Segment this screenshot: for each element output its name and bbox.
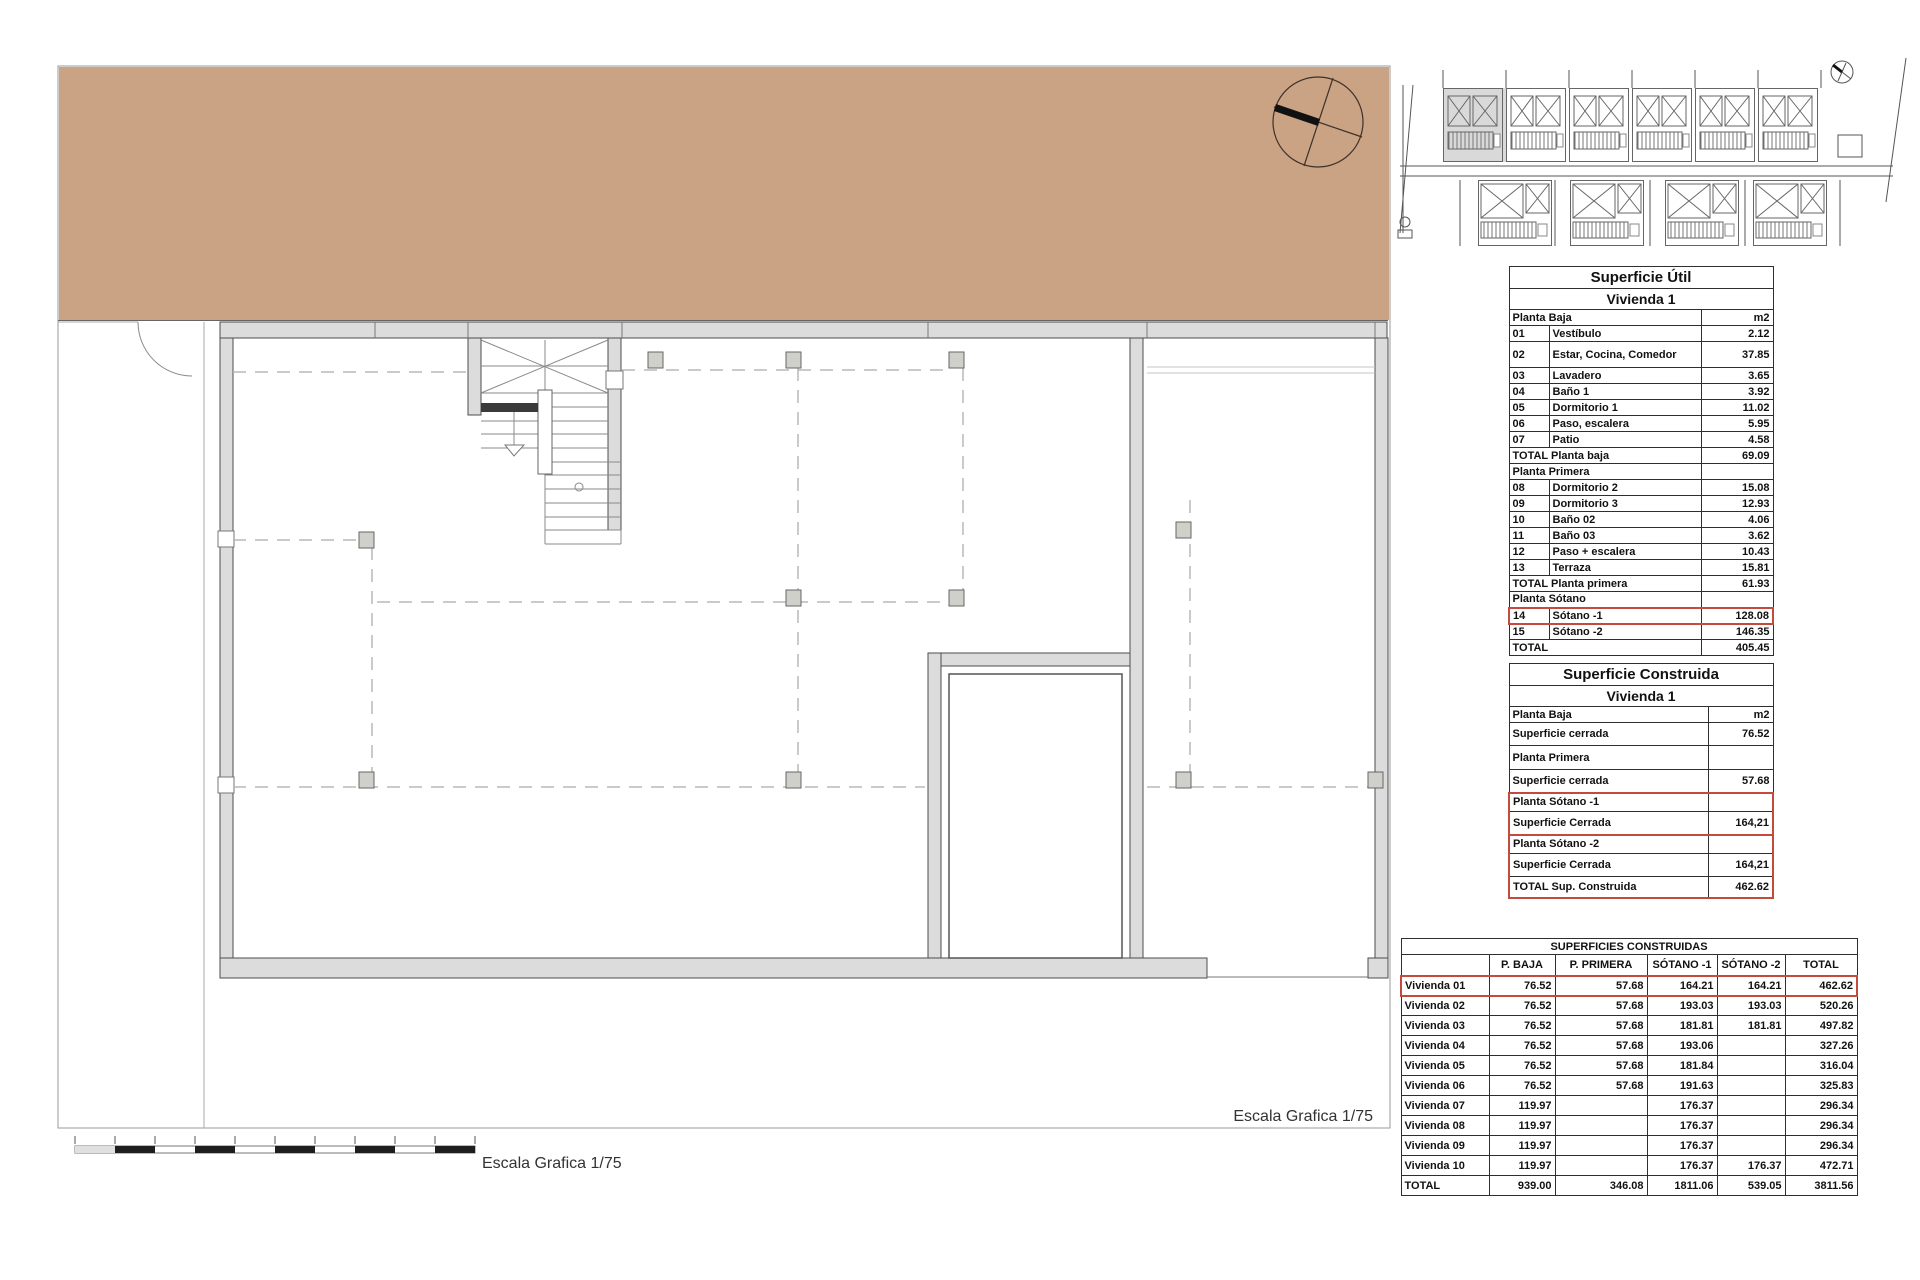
drawing-sheet: { "page": { "escala_label": "Escala Graf… — [0, 0, 1920, 1280]
column-header: SÓTANO -2 — [1717, 955, 1785, 976]
table-title: SUPERFICIES CONSTRUIDAS — [1401, 939, 1857, 955]
table-title: Superficie Útil — [1509, 267, 1773, 289]
table-row: 09Dormitorio 312.93 — [1509, 496, 1773, 512]
projection-dashed-lines — [233, 368, 1375, 787]
table-row: 07Patio4.58 — [1509, 432, 1773, 448]
table-row: Planta Sótano -1 — [1509, 793, 1773, 812]
wall-joints — [375, 322, 1375, 977]
table-row: 02Estar, Cocina, Comedor37.85 — [1509, 342, 1773, 368]
table-title: Superficie Construida — [1509, 664, 1773, 686]
table-subtitle: Vivienda 1 — [1509, 289, 1773, 310]
table-row: Planta Primera — [1509, 746, 1773, 770]
table-subtitle-row: Vivienda 1 — [1509, 686, 1773, 707]
table-row: Superficie cerrada57.68 — [1509, 770, 1773, 793]
column-header — [1401, 955, 1489, 976]
table-row: Vivienda 07119.97176.37296.34 — [1401, 1096, 1857, 1116]
table-row: 06Paso, escalera5.95 — [1509, 416, 1773, 432]
table-row: Superficie Cerrada164,21 — [1509, 854, 1773, 877]
table-row: Vivienda 09119.97176.37296.34 — [1401, 1136, 1857, 1156]
table-row: Vivienda 0476.5257.68193.06327.26 — [1401, 1036, 1857, 1056]
table-row: 15Sótano -2146.35 — [1509, 624, 1773, 640]
site-plan-thumbnail — [1398, 58, 1906, 246]
superficie-util-table: Superficie Útil Vivienda 1 Planta Bajam2… — [1508, 266, 1774, 656]
table-row: Vivienda 0176.5257.68164.21164.21462.62 — [1401, 976, 1857, 996]
table-row: 01Vestíbulo2.12 — [1509, 326, 1773, 342]
table-row: TOTAL939.00346.081811.06539.053811.56 — [1401, 1176, 1857, 1196]
table-row: Superficie Cerrada164,21 — [1509, 812, 1773, 835]
column-header: P. PRIMERA — [1555, 955, 1647, 976]
thumb-north-arrow-icon — [1831, 61, 1853, 83]
neighbor-beam-lines — [1147, 367, 1375, 373]
column-header: P. BAJA — [1489, 955, 1555, 976]
table-row: 14Sótano -1128.08 — [1509, 608, 1773, 624]
table-row: 12Paso + escalera10.43 — [1509, 544, 1773, 560]
table-row: 13Terraza15.81 — [1509, 560, 1773, 576]
table-subtitle: Vivienda 1 — [1509, 686, 1773, 707]
scale-caption-bar: Escala Grafica 1/75 — [482, 1155, 622, 1172]
table-title-row: SUPERFICIES CONSTRUIDAS — [1401, 939, 1857, 955]
staircase — [481, 340, 621, 544]
table-row: Planta Bajam2 — [1509, 310, 1773, 326]
walls — [220, 322, 1388, 978]
table-row: TOTAL Planta primera61.93 — [1509, 576, 1773, 592]
table-row: 03Lavadero3.65 — [1509, 368, 1773, 384]
table-row: Planta Sótano -2 — [1509, 835, 1773, 854]
column-header: SÓTANO -1 — [1647, 955, 1717, 976]
table-row: Planta Sótano — [1509, 592, 1773, 608]
table-subtitle-row: Vivienda 1 — [1509, 289, 1773, 310]
table-row: Vivienda 0376.5257.68181.81181.81497.82 — [1401, 1016, 1857, 1036]
table-row: Planta Primera — [1509, 464, 1773, 480]
table-row: Vivienda 0576.5257.68181.84316.04 — [1401, 1056, 1857, 1076]
table-row: 11Baño 033.62 — [1509, 528, 1773, 544]
table-title-row: Superficie Útil — [1509, 267, 1773, 289]
table-row: 04Baño 13.92 — [1509, 384, 1773, 400]
scale-bar — [75, 1136, 475, 1153]
table-row: 08Dormitorio 215.08 — [1509, 480, 1773, 496]
column-header: TOTAL — [1785, 955, 1857, 976]
table-row: 10Baño 024.06 — [1509, 512, 1773, 528]
superficies-construidas-table: SUPERFICIES CONSTRUIDAS P. BAJA P. PRIME… — [1400, 938, 1858, 1196]
table-row: Superficie cerrada76.52 — [1509, 723, 1773, 746]
superficie-construida-table: Superficie Construida Vivienda 1 Planta … — [1508, 663, 1774, 899]
structural-columns — [359, 352, 1383, 788]
table-row: Vivienda 0676.5257.68191.63325.83 — [1401, 1076, 1857, 1096]
patio-room-lining — [949, 674, 1122, 958]
scale-caption-sheet: Escala Grafica 1/75 — [1233, 1108, 1373, 1125]
table-row: TOTAL405.45 — [1509, 640, 1773, 656]
table-row: Planta Bajam2 — [1509, 707, 1773, 723]
column-header-row: P. BAJA P. PRIMERA SÓTANO -1 SÓTANO -2 T… — [1401, 955, 1857, 976]
table-row: TOTAL Sup. Construida462.62 — [1509, 877, 1773, 898]
table-row: Vivienda 10119.97176.37176.37472.71 — [1401, 1156, 1857, 1176]
earth-area — [58, 67, 1389, 321]
plot-boundary — [58, 322, 204, 1128]
table-title-row: Superficie Construida — [1509, 664, 1773, 686]
table-row: Vivienda 0276.5257.68193.03193.03520.26 — [1401, 996, 1857, 1016]
table-row: Vivienda 08119.97176.37296.34 — [1401, 1116, 1857, 1136]
table-row: TOTAL Planta baja69.09 — [1509, 448, 1773, 464]
table-row: 05Dormitorio 111.02 — [1509, 400, 1773, 416]
